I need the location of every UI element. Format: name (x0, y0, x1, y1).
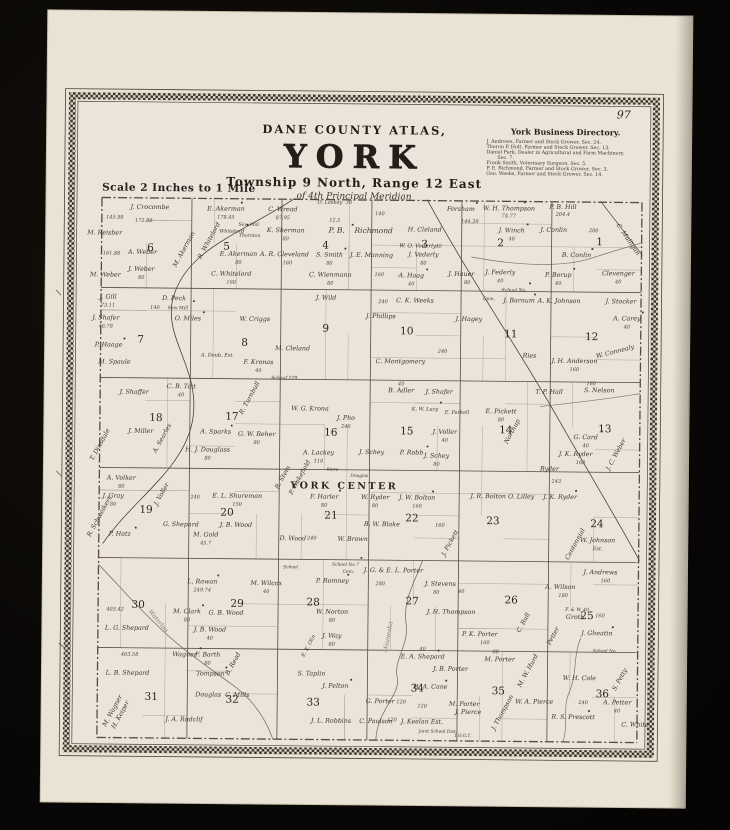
acreage-label: 80 (138, 275, 145, 281)
owner-label: W. Ryder (361, 494, 390, 501)
acreage-label: 12.5 (329, 218, 340, 224)
owner-label: Cem. (483, 296, 496, 302)
owner-label: P. B. Hill (548, 204, 576, 211)
owner-label: W. Brown (338, 536, 368, 543)
owner-label: W. H. Thompson (483, 205, 535, 212)
owner-label: Store (326, 468, 339, 473)
acreage-label: 243 (551, 479, 562, 485)
owner-label: M. Reisber (86, 229, 123, 236)
owner-label: W. A. Pierce (515, 698, 554, 705)
acreage-label: 150 (232, 502, 242, 508)
house-dot (440, 402, 442, 404)
owner-label: O. Lasbey (318, 200, 343, 206)
house-dot (476, 202, 478, 204)
owner-label: J. Weber (126, 266, 156, 273)
owner-label: F. & W. 40 (564, 607, 589, 613)
owner-label: A. Lackey (302, 449, 335, 456)
house-dot (135, 527, 137, 529)
owner-label: J. Barnum (501, 297, 535, 304)
acreage-label: 80 (204, 660, 211, 666)
acreage-label: 40 (206, 635, 214, 641)
owner-label: K. Sherman (266, 227, 305, 234)
acreage-label: 80 (492, 649, 499, 655)
acreage-label: 40 (614, 279, 622, 285)
owner-label: M. Cleland (274, 345, 310, 352)
owner-label: J. Winch (497, 227, 525, 234)
owner-label: School No. (501, 287, 527, 293)
owner-label: O. Miles (175, 315, 202, 322)
owner-label: C. Whitelord (211, 271, 251, 278)
section-number: 12 (585, 331, 598, 343)
house-dot (588, 710, 590, 712)
owner-label: A. K. Johnson (537, 298, 581, 305)
acreage-label: 46.78 (98, 323, 113, 329)
acreage-label: 160 (283, 260, 293, 266)
owner-label: S. Nelson (584, 387, 614, 394)
acreage-label: 80 (235, 260, 242, 266)
section-number: 16 (324, 427, 338, 439)
owner-label: P. Borup (544, 272, 572, 279)
acreage-label: 80 (118, 484, 125, 490)
acreage-label: 80 (329, 642, 336, 648)
acreage-label: 40 (262, 589, 270, 595)
owner-label: C. White (621, 721, 649, 728)
owner-label: A. R. Cleveland (259, 251, 309, 258)
owner-label: R. S. Prescott (550, 714, 595, 721)
owner-label: B. Adler (387, 387, 415, 394)
owner-label: G. Porter (366, 698, 396, 705)
directory-heading: York Business Directory. (510, 126, 621, 137)
owner-label: W. Criggs (240, 316, 271, 323)
acreage-label: 240 (377, 299, 388, 305)
owner-label: L. Rowan (186, 578, 217, 585)
scale-note: Scale 2 Inches to 1 Mile (102, 181, 256, 194)
owner-label: L. B. Shepard (105, 670, 150, 677)
owner-label: C. K. Weeks (396, 297, 435, 304)
owner-label: C. B. Tait (167, 383, 197, 390)
acreage-label: 110 (314, 459, 324, 465)
owner-label: Douglas (194, 691, 222, 698)
owner-label: E. A. Shepard (400, 653, 445, 660)
owner-label: J. B. Porter (431, 666, 469, 673)
acreage-label: 80 (329, 618, 336, 624)
owner-label: P. K. Porter (461, 631, 499, 638)
owner-label: J. Schey (422, 453, 450, 460)
owner-label: E. Akerman (206, 205, 245, 212)
house-dot (524, 202, 526, 204)
owner-label: J. Schey (357, 449, 385, 456)
owner-label: J. Gheatin (579, 630, 612, 637)
acreage-label: 40 (507, 236, 515, 242)
section-number: 7 (137, 334, 144, 346)
acreage-label: 80 (282, 236, 289, 242)
owner-label: F. Barth (194, 651, 220, 658)
owner-label: J. R. Bolton (468, 493, 506, 500)
atlas-scan: 97 DANE COUNTY ATLAS, YORK Township 9 No… (0, 0, 730, 830)
house-dot (438, 650, 440, 652)
house-dot (345, 248, 347, 250)
acreage-label: 160 (595, 613, 605, 619)
owner-label: A. Weber (127, 249, 158, 256)
owner-label: Groth (566, 614, 584, 621)
owner-label: G. B. Wood (208, 609, 243, 616)
owner-label: Richmond (354, 226, 394, 235)
owner-label: J. Way (320, 633, 342, 640)
house-dot (592, 248, 594, 250)
owner-label: J. Stevens (423, 581, 457, 588)
acreage-label: 160 (570, 367, 580, 373)
acreage-label: 160 (374, 272, 384, 278)
section-number: 4 (322, 240, 329, 252)
house-dot (427, 446, 429, 448)
house-dot (573, 268, 575, 270)
acreage-label: 145.98 (106, 214, 124, 220)
owner-label: H. J. Douglass (184, 446, 231, 453)
owner-label: A. Haag (397, 272, 424, 279)
owner-label: M. Wilcox (249, 580, 282, 587)
acreage-label: 160 (412, 503, 422, 509)
owner-label: J. Vederly (406, 251, 439, 258)
acreage-label: 160 (435, 523, 445, 529)
owner-label: J. G. & E. L. Porter (362, 567, 424, 575)
owner-label: J. Voller (430, 429, 458, 436)
owner-label: S. Smith (316, 252, 343, 259)
owner-label: Forsham (446, 206, 475, 213)
owner-label: W. Norton (316, 609, 348, 616)
acreage-label: 80 (433, 590, 440, 596)
owner-label: L. G. Shepard (104, 624, 149, 631)
house-dot (534, 294, 536, 296)
house-dot (361, 557, 363, 559)
owner-label: J. H. Thompson (425, 609, 476, 616)
owner-label: D. Wood (278, 535, 306, 542)
owner-label: C. Wienmann (309, 271, 352, 278)
owner-label: A. Carey (612, 315, 641, 322)
section-number: 19 (139, 504, 152, 516)
section-number: 2 (497, 237, 504, 249)
owner-label: P. Robb (399, 449, 424, 456)
owner-label: C. Montgomery (376, 358, 426, 365)
owner-label: M. Gold (192, 531, 218, 538)
house-dot (347, 574, 349, 576)
acreage-label: 120 (387, 717, 397, 723)
owner-label: P. Haage (94, 341, 123, 348)
owner-label: J. Shafer (90, 314, 120, 321)
acreage-label: 40 (613, 708, 621, 714)
owner-label: D. Peck (161, 295, 186, 302)
acreage-label: 40 (554, 281, 562, 287)
section-number: 22 (405, 512, 418, 524)
acreage-label: 80 (420, 261, 427, 267)
house-dot (231, 425, 233, 427)
page-number: 97 (617, 108, 631, 121)
section-number: 26 (504, 594, 518, 606)
owner-label: P. Hatz (108, 531, 132, 538)
house-dot (193, 300, 195, 302)
acreage-label: 172.88 (135, 218, 153, 224)
section-number: 29 (230, 598, 243, 610)
acreage-label: 160 (601, 578, 611, 584)
owner-label: A. Wilson (544, 584, 575, 591)
owner-label: J. Pelton (320, 683, 348, 690)
house-dot (226, 667, 228, 669)
owner-label: H. A. Cane (412, 683, 448, 690)
owner-label: J. Phillips (364, 313, 396, 320)
house-dot (527, 224, 529, 226)
acreage-label: 144.39 (461, 219, 479, 225)
acreage-label: 160 (226, 280, 236, 286)
house-dot (642, 312, 644, 314)
acreage-label: 120 (396, 699, 406, 705)
acreage-label: 403.58 (120, 652, 139, 658)
house-dot (202, 604, 204, 606)
acreage-label: 249.74 (192, 587, 211, 593)
owner-label: F. Harler (309, 493, 339, 500)
section-number: 31 (144, 691, 157, 703)
owner-label: H. Cleland (407, 226, 442, 233)
owner-label: O. Lilley (508, 493, 535, 500)
acreage-label: 40 (457, 589, 465, 595)
owner-label: J. Miller (126, 428, 154, 435)
owner-label: W. H. Cole (563, 675, 597, 682)
owner-label: W. Johnson (580, 537, 615, 544)
acreage-label: 40 (418, 647, 426, 653)
owner-label: M. Spaule (97, 358, 131, 365)
house-dot (217, 575, 219, 577)
acreage-label: 80 (204, 455, 211, 461)
acreage-label: 40 (254, 368, 262, 374)
owner-label: J. B. Wood (218, 522, 252, 529)
owner-label: J. Pho (335, 415, 355, 422)
township-name-title: YORK (283, 137, 425, 176)
section-number: 10 (400, 325, 413, 337)
section-number: 11 (504, 328, 517, 340)
owner-label: J. H. Anderson (549, 358, 597, 365)
house-dot (350, 679, 352, 681)
owner-label: P. Romney (315, 578, 349, 585)
section-number: 21 (324, 510, 337, 522)
acreage-label: 240 (577, 700, 588, 706)
acreage-label: 80 (464, 280, 471, 286)
house-dot (432, 491, 434, 493)
acreage-label: 280 (375, 581, 386, 587)
acreage-label: 80 (327, 281, 334, 287)
owner-label: C. Wread (268, 206, 297, 213)
acreage-label: 240 (306, 535, 317, 541)
owner-label: J. Crocombe (129, 204, 170, 211)
acreage-label: 200 (588, 228, 599, 234)
section-number: 28 (306, 596, 319, 608)
owner-label: J. Federly (483, 269, 516, 276)
owner-label: J. B. Wood (192, 626, 226, 633)
acreage-label: 80 (184, 617, 191, 623)
owner-label: B. Conlin (561, 252, 591, 259)
acreage-label: 240 (340, 424, 351, 430)
owner-label: J. A. Radclif (163, 716, 204, 723)
owner-label: W. O. Vederly (399, 243, 437, 249)
house-dot (426, 269, 428, 271)
acreage-label: 160 (586, 381, 596, 387)
house-dot (200, 647, 202, 649)
section-number: 15 (400, 425, 413, 437)
acreage-label: 40 (407, 281, 415, 287)
owner-label: J. K. Ryder (541, 494, 578, 501)
directory-entry: Geo. Weeks, Farmer and Stock Grower. Sec… (486, 171, 603, 178)
acreage-label: 74.77 (502, 213, 517, 219)
township-range-subtitle: Township 9 North, Range 12 East (226, 175, 482, 191)
acreage-label: 73.11 (101, 302, 115, 308)
owner-label: J. Shafer (424, 389, 454, 396)
owner-label: Ryder (539, 466, 560, 473)
acreage-label: 204.4 (555, 212, 570, 218)
owner-label: E. L. Shureman (211, 493, 262, 500)
owner-label: A. Sparks (199, 428, 232, 435)
acreage-label: 178.45 (217, 215, 235, 221)
acreage-label: 140 (375, 211, 385, 217)
owner-label: M. Porter (483, 656, 516, 663)
section-number: 27 (405, 595, 418, 607)
owner-label: P. B. (328, 226, 345, 235)
house-dot (241, 202, 243, 204)
owner-label: G. Shepard (163, 521, 199, 528)
owner-label: A. Doub. Est. (200, 352, 235, 358)
acreage-label: 80 (321, 503, 328, 509)
section-number: 33 (306, 696, 319, 708)
owner-label: J. W. Bolton (397, 494, 435, 501)
owner-label: J. Andrews (581, 569, 618, 576)
atlas-page: 97 DANE COUNTY ATLAS, YORK Township 9 No… (40, 10, 693, 808)
acreage-label: 240 (437, 349, 448, 355)
acreage-label: 80 (253, 440, 260, 446)
owner-label: J. Pierce (453, 709, 482, 716)
acreage-label: 80 (498, 417, 505, 423)
owner-label: J. Keelan Est. (399, 718, 443, 725)
owner-label: School No 7 (332, 563, 359, 568)
acreage-label: 40 (397, 381, 405, 387)
house-dot (339, 490, 341, 492)
acreage-label: 40 (581, 443, 589, 449)
acreage-label: 40 (440, 438, 448, 444)
section-number: 13 (598, 423, 611, 435)
section-number: 9 (322, 323, 329, 335)
acreage-label: 40 (177, 392, 185, 398)
owner-label: I.O.G.T. (454, 734, 472, 739)
owner-label: A. Volker (106, 475, 137, 482)
owner-label: M. Weber (89, 271, 122, 278)
house-dot (612, 626, 614, 628)
owner-label: Est. (592, 546, 603, 552)
section-number: 24 (590, 518, 604, 530)
acreage-label: 160 (576, 460, 586, 466)
owner-label: School No. (593, 649, 617, 654)
owner-label: J. Wild (314, 294, 337, 301)
acreage-label: 161.88 (103, 250, 121, 256)
house-dot (601, 430, 603, 432)
owner-label: School (283, 565, 299, 570)
owner-label: Schaaf 279 (271, 375, 297, 381)
owner-label: M. Clark (172, 608, 201, 615)
acreage-label: 40 (434, 244, 442, 250)
house-dot (529, 283, 531, 285)
owner-label: J. E. Manning (348, 252, 393, 259)
owner-label: Saw Mill (168, 305, 189, 311)
owner-label: K. W. Lucy (411, 406, 439, 412)
owner-label: E. Akerman (219, 251, 258, 258)
owner-label: J. Hauer (446, 271, 475, 278)
owner-label: M. Porter (448, 701, 481, 708)
section-number: 35 (492, 685, 505, 697)
owner-label: E. Pickett (484, 408, 517, 415)
acreage-label: 45.7 (199, 540, 212, 546)
house-dot (124, 338, 126, 340)
owner-label: W. G. Krona (291, 405, 329, 412)
section-number: 23 (486, 515, 499, 527)
section-number: 8 (241, 337, 248, 349)
acreage-label: 87.95 (276, 215, 290, 221)
section-number: 1 (596, 236, 603, 248)
owner-label: G. W. Reher (238, 431, 276, 438)
owner-label: A. Petter (602, 699, 632, 706)
owner-label: F. Kronas (242, 359, 274, 366)
acreage-label: 140 (150, 305, 160, 311)
owner-label: Tompson (196, 670, 225, 677)
village-label: YORK CENTER (289, 480, 398, 492)
owner-label: E. Parkell (444, 410, 470, 416)
acreage-label: 403.42 (105, 607, 124, 613)
acreage-label: 120 (417, 704, 427, 710)
owner-label: Douglas (349, 474, 369, 479)
owner-label: T. P. Hall (535, 389, 563, 396)
owner-label: J. Conlin (538, 227, 567, 234)
house-dot (203, 311, 205, 313)
owner-label: J. L. Robbins (309, 717, 352, 724)
section-number: 18 (149, 412, 162, 424)
acreage-label: 180 (558, 593, 568, 599)
acreage-label: 30 (346, 200, 353, 206)
owner-label: S. Taplin (298, 670, 326, 677)
acreage-label: 80 (326, 261, 333, 267)
section-number: 30 (131, 599, 144, 611)
acreage-label: 80 (433, 462, 440, 468)
directory-entry: Sec. 7. (497, 155, 514, 161)
atlas-title: DANE COUNTY ATLAS, (262, 122, 447, 138)
acreage-label: 240 (189, 494, 200, 500)
owner-label: J. Hagey (454, 316, 483, 323)
acreage-label: 80 (372, 503, 379, 509)
house-dot (575, 490, 577, 492)
owner-label: Joint School Dist. (418, 730, 458, 735)
acreage-label: 40 (623, 324, 631, 330)
owner-label: Ries (522, 352, 538, 359)
house-dot (352, 224, 354, 226)
owner-label: C. Mills (225, 692, 250, 699)
owner-label: J. Stocker (604, 298, 638, 305)
owner-label: G. Card (574, 434, 598, 441)
owner-label: J. Gill (97, 293, 116, 300)
house-dot (445, 680, 447, 682)
section-number: 20 (220, 507, 233, 519)
acreage-label: 160 (480, 640, 490, 646)
owner-label: B. W. Blake (363, 521, 400, 528)
section-number: 17 (225, 411, 238, 423)
owner-label: Thornton (239, 233, 261, 239)
owner-label: J. K. Ryder (557, 451, 594, 458)
acreage-label: 40 (496, 278, 504, 284)
owner-label: Saw Mill (239, 222, 260, 228)
owner-label: J. Shaffer (117, 389, 149, 396)
owner-label: Clevenger (602, 270, 636, 277)
